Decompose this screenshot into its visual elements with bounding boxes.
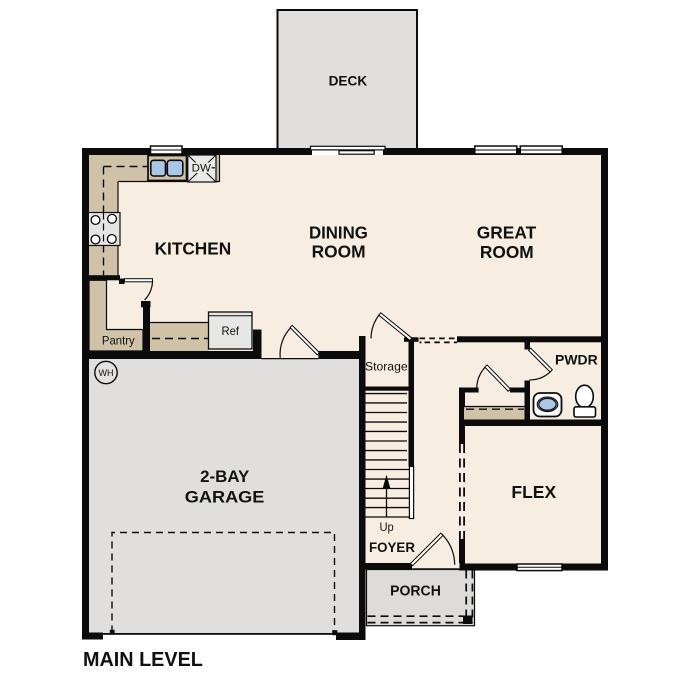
svg-text:DECK: DECK [329,74,368,89]
svg-text:DINING: DINING [309,222,368,242]
svg-text:2-BAY: 2-BAY [200,467,249,486]
svg-text:KITCHEN: KITCHEN [155,238,232,258]
svg-text:GARAGE: GARAGE [185,488,265,507]
svg-text:FOYER: FOYER [369,540,415,555]
svg-text:ROOM: ROOM [312,242,366,262]
svg-text:PORCH: PORCH [390,584,441,600]
svg-text:GREAT: GREAT [477,222,537,242]
svg-text:WH: WH [99,368,114,379]
svg-text:Up: Up [379,520,393,534]
svg-text:PWDR: PWDR [555,353,598,368]
svg-text:Ref: Ref [222,325,240,338]
svg-text:FLEX: FLEX [511,482,556,502]
svg-text:DW: DW [192,163,211,175]
svg-text:ROOM: ROOM [480,242,534,262]
svg-text:Pantry: Pantry [102,334,136,348]
svg-text:Storage: Storage [365,359,408,373]
svg-text:MAIN LEVEL: MAIN LEVEL [83,649,203,671]
